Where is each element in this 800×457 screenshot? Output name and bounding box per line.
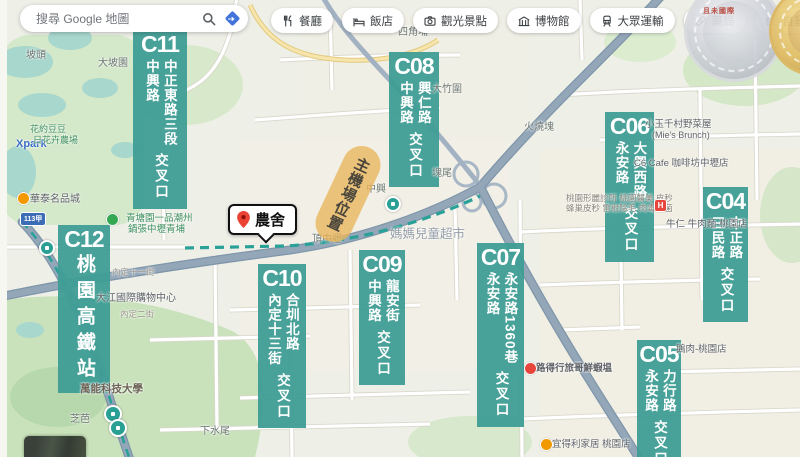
intersection-suffix: 交叉口 [491,371,511,418]
intersection-roads: 大興西路永安路 [611,141,649,199]
search-input[interactable] [34,11,194,27]
intersection-id: C12 [64,227,103,251]
map-label: 內定十一街 [112,268,155,277]
map-label[interactable]: 華泰名品城 [30,194,80,205]
map-label[interactable]: 鵝肉-桃園店 [676,345,727,355]
search-icon[interactable] [202,12,216,26]
map-label: 塊尾 [432,168,452,179]
intersection-roads: 桃園高鐵站 [71,254,97,384]
category-chip-1[interactable]: 餐廳 [271,8,333,33]
store-icon[interactable] [540,438,553,451]
museum-icon [518,15,530,27]
intersection-id: C04 [706,189,745,213]
intersection-suffix: 交叉口 [716,267,736,314]
intersection-label-c12: C12桃園高鐵站 [58,225,110,393]
category-chip-2[interactable]: 飯店 [342,8,404,33]
category-chip-3[interactable]: 觀光景點 [413,8,498,33]
map-label: 萬能科技大學 [80,384,143,396]
intersection-id: C08 [394,54,433,78]
intersection-suffix: 交叉口 [649,420,669,457]
intersection-id: C11 [141,32,179,56]
intersection-label-c05: C05力行路永安路交叉口 [637,340,681,457]
map-label: 坡頭 [26,50,46,61]
intersection-label-c10: C10合圳北路內定十三街交叉口 [258,264,306,428]
intersection-roads: 龍安街中興路 [363,279,401,323]
hotel-icon [353,15,365,27]
intersection-roads: 合圳北路內定十三街 [263,293,301,366]
farmhouse-marker-label: 農舍 [255,209,285,230]
map-label: (Mie's Brunch) [652,131,710,141]
intersection-suffix: 交叉口 [372,330,392,377]
intersection-label-c11: C11中正東路三段中興路交叉口 [133,30,187,209]
intersection-id: C10 [262,266,301,290]
map-label: 大江國際購物中心 [96,293,176,304]
silver-medal-text: 且未國際 [703,6,735,16]
farmhouse-marker[interactable]: 農舍 [228,204,297,235]
intersection-roads: 興仁路中興路 [395,81,433,125]
intersection-roads: 力行路永安路 [640,369,678,413]
map-label[interactable]: 花約豆豆 [30,125,66,135]
map-label[interactable]: 青塘園一品潮州 [126,214,193,224]
intersection-label-c09: C09龍安街中興路交叉口 [359,250,405,385]
map-label: 大竹圍 [432,84,462,95]
category-chip-label: 餐廳 [299,13,322,29]
intersection-id: C07 [481,245,520,269]
map-label[interactable]: 宜得利家居 桃園店 [552,440,631,450]
transit-station-icon[interactable] [109,419,127,437]
map-label: 大坡園 [98,58,128,69]
category-chip-label: 大眾運輸 [618,13,664,29]
intersection-suffix: 交叉口 [404,132,424,179]
map-label[interactable]: 鍋張中壢青埔 [128,225,185,235]
map-label: 芝芭 [70,414,90,425]
intersection-label-c07: C07永安路1360巷永安路交叉口 [477,243,524,427]
intersection-suffix: 交叉口 [150,153,170,200]
intersection-id: C05 [639,342,678,366]
search-bar [20,5,248,32]
map-label: 下水尾 [200,426,230,437]
map-label[interactable]: C6 Cafe 咖啡坊中壢店 [634,159,729,169]
road-shield: 113甲 [20,212,46,226]
transit-station-icon[interactable] [39,240,55,256]
map-pin-icon [237,211,250,228]
transit-icon [601,15,613,27]
category-chip-label: 觀光景點 [441,13,487,29]
map-label[interactable]: 媽媽兒童超市 [390,228,465,242]
camera-icon [424,15,436,27]
transit-station-icon[interactable] [385,196,401,212]
category-chip-label: 博物館 [535,13,570,29]
left-edge-strip [0,0,7,457]
intersection-roads: 中正東路三段中興路 [141,59,179,146]
map-label: 內定二街 [120,310,154,319]
map-label: 火燒塊 [524,122,554,133]
google-maps-window: C11中正東路三段中興路交叉口C08興仁路中興路交叉口C06大興西路永安路交叉口… [0,0,800,457]
restaurant-icon [282,15,294,27]
intersection-id: C09 [362,252,401,276]
shopping-icon[interactable] [17,192,30,205]
park-icon[interactable] [106,213,119,226]
category-chip-label: 飯店 [370,13,393,29]
map-label[interactable]: 路得行旅哥鮮蝦塭 [536,364,612,374]
satellite-layer-thumbnail[interactable] [24,436,86,457]
category-chip-4[interactable]: 博物館 [507,8,581,33]
map-label[interactable]: 日花卉農場 [33,136,78,146]
hospital-icon[interactable]: H [654,199,667,212]
intersection-label-c06: C06大興西路永安路交叉口 [605,112,654,262]
intersection-suffix: 交叉口 [272,373,292,420]
category-chip-5[interactable]: 大眾運輸 [590,8,675,33]
map-label[interactable]: 牛仁 牛肉麵-桃園店 [666,220,748,230]
intersection-label-c04: C04中正路三民路交叉口 [703,187,748,322]
map-label[interactable]: 小玉千村野菜屋 [645,120,712,130]
restaurant-poi-icon[interactable] [524,362,537,375]
intersection-id: C06 [610,114,649,138]
intersection-label-c08: C08興仁路中興路交叉口 [389,52,439,187]
directions-icon[interactable] [224,11,240,27]
intersection-roads: 永安路1360巷永安路 [482,272,520,364]
